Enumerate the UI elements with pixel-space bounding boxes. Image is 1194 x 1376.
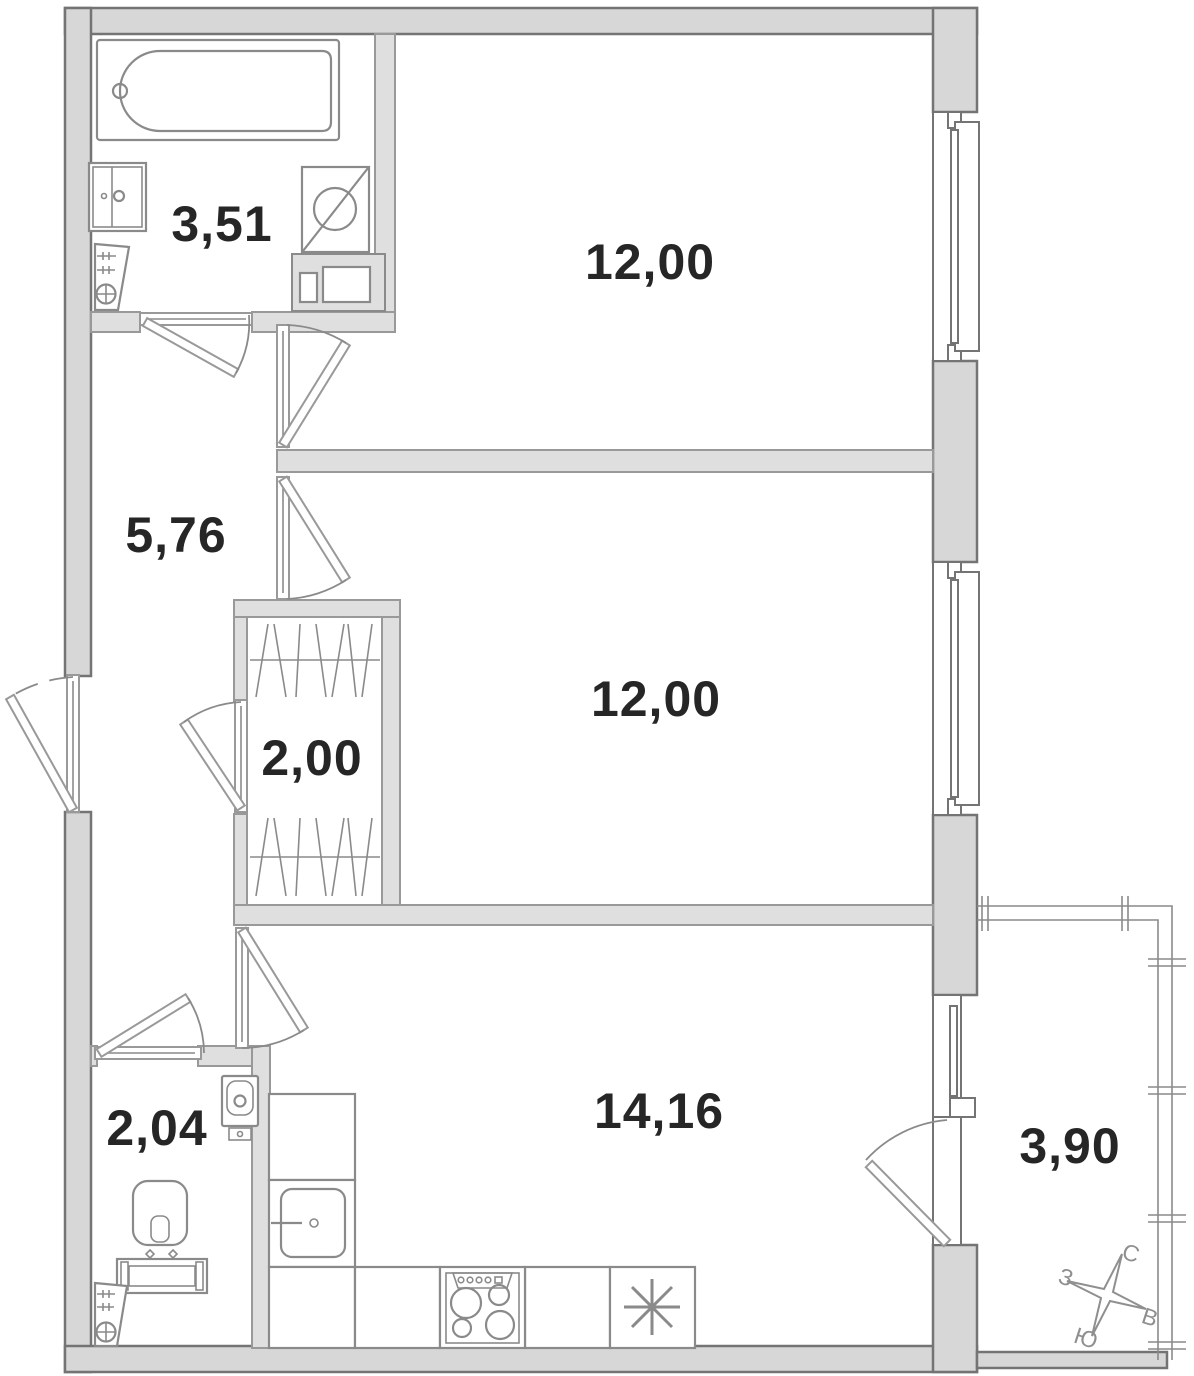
floor-plan: С З В Ю 3,51 12,00 5,76 2,00 12,00 2,04 … — [0, 0, 1194, 1376]
door-kitchen — [236, 928, 308, 1048]
towel-radiator-wc — [95, 1283, 127, 1346]
door-entrance — [6, 675, 79, 812]
area-label-room-top: 12,00 — [585, 233, 715, 291]
area-label-hallway: 5,76 — [125, 506, 226, 564]
area-label-balcony: 3,90 — [1019, 1117, 1120, 1175]
balcony-floor-slab — [977, 1352, 1167, 1368]
area-label-kitchen-living: 14,16 — [594, 1082, 724, 1140]
window-middle-room — [933, 562, 979, 815]
compass-north-label: С — [1119, 1238, 1143, 1268]
kitchen-cabinet-tall — [269, 1094, 355, 1180]
stove — [440, 1267, 525, 1348]
area-label-bathroom: 3,51 — [171, 195, 272, 253]
compass-west-label: З — [1055, 1262, 1076, 1291]
area-label-wc: 2,04 — [106, 1099, 207, 1157]
door-wardrobe — [180, 700, 247, 812]
fridge — [610, 1267, 695, 1348]
area-label-wardrobe: 2,00 — [261, 729, 362, 787]
bathroom-cabinet — [89, 163, 146, 231]
area-label-room-middle: 12,00 — [591, 670, 721, 728]
balcony-door — [866, 1117, 961, 1246]
toilet — [117, 1181, 207, 1293]
door-bathroom — [140, 313, 252, 377]
window-top-room — [933, 112, 979, 361]
washing-machine — [302, 167, 369, 252]
compass-rose: С З В Ю — [1055, 1238, 1161, 1354]
bathtub — [97, 40, 339, 140]
door-wc — [95, 994, 204, 1059]
kitchen-sink — [269, 1180, 355, 1267]
door-room-middle — [277, 477, 350, 599]
balcony-window — [933, 995, 975, 1117]
compass-south-label: Ю — [1071, 1322, 1101, 1354]
door-room-top — [277, 325, 350, 447]
bathroom-shelf — [292, 254, 385, 311]
towel-radiator-bathroom — [95, 244, 129, 310]
